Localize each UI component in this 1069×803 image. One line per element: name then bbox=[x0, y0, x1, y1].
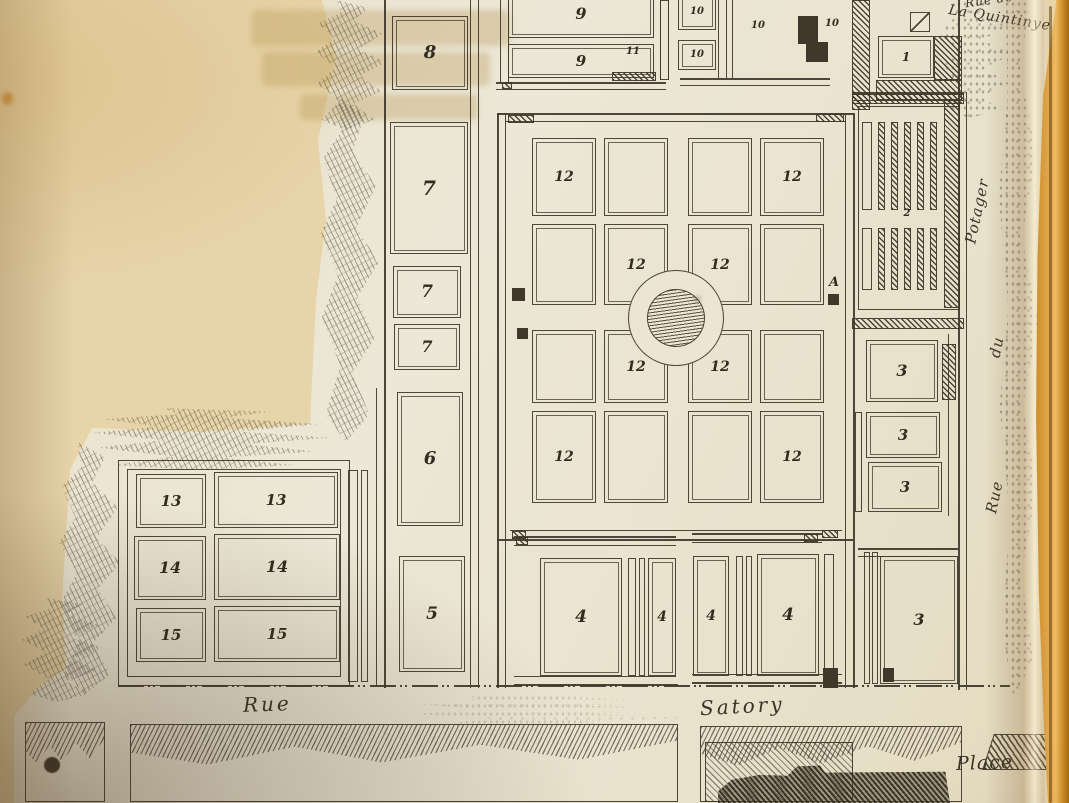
book-edge-line bbox=[1049, 6, 1052, 803]
street-label-rue: Rue bbox=[982, 479, 1006, 515]
street-label-la-quintinye: La Quintinye bbox=[947, 2, 1052, 34]
street-label-place: Place bbox=[956, 751, 1014, 775]
street-names: RueSatoryPlaceRueduPotagerRue deLa Quint… bbox=[0, 0, 1069, 803]
street-label-satory: Satory bbox=[699, 692, 785, 720]
street-label-rue: Rue bbox=[243, 691, 293, 717]
paper-stain bbox=[694, 296, 701, 302]
street-label-potager: Potager bbox=[961, 177, 992, 245]
paper-stain bbox=[2, 92, 13, 105]
street-label-du: du bbox=[986, 335, 1008, 360]
book-page-photo: 8777659911101010101212121212121212123333… bbox=[0, 0, 1069, 803]
